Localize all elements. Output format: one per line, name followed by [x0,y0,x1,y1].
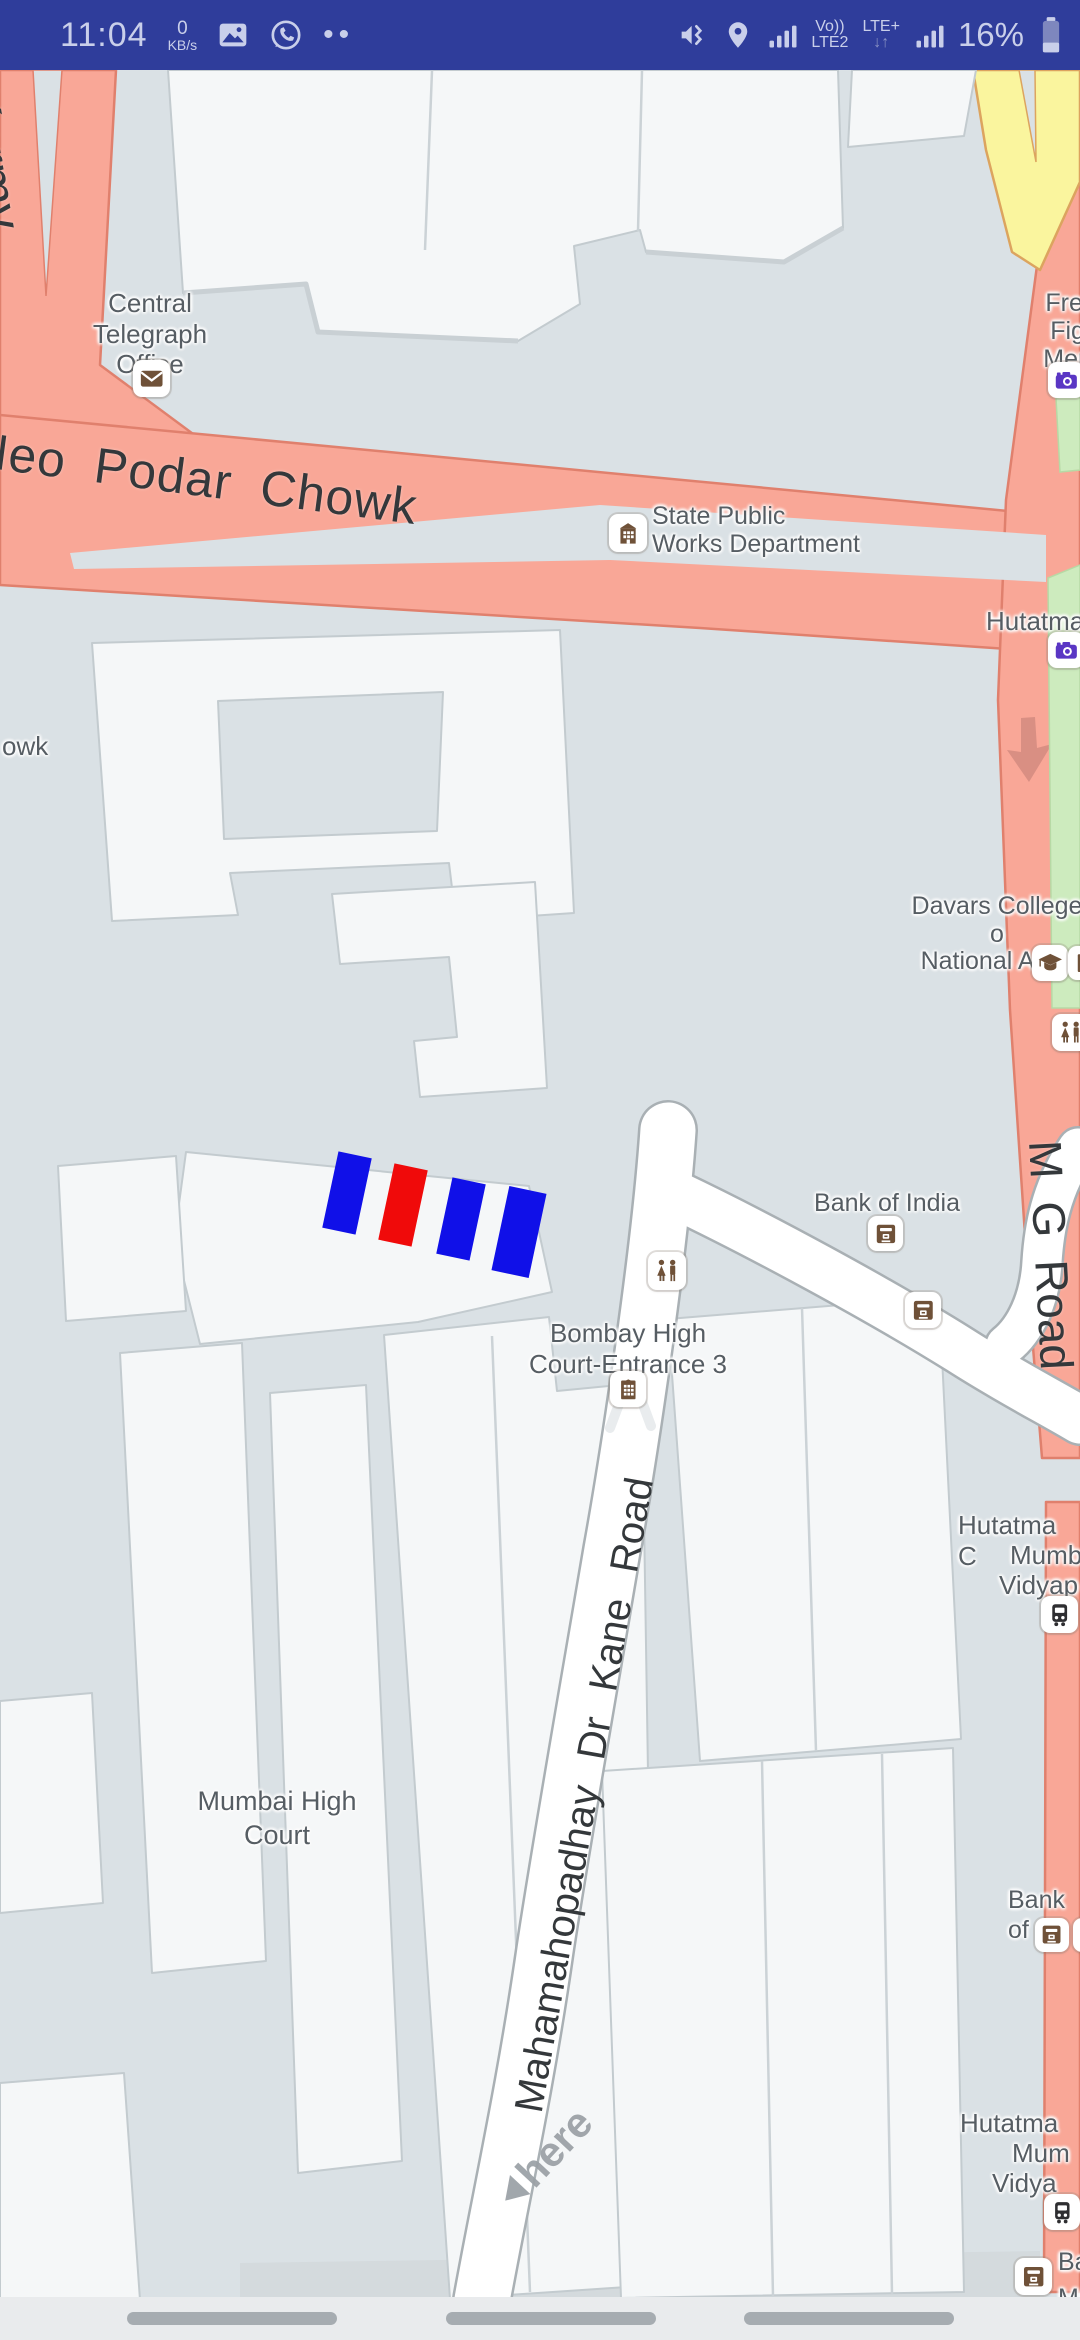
image-notification-icon [217,19,249,51]
vibrate-icon [677,19,709,51]
nav-pill-left[interactable] [127,2312,337,2325]
college-icon[interactable] [1032,945,1068,981]
poi-label-bank-bottom-1: Ba [1058,2248,1080,2278]
volte-indicator: Vo)) LTE2 [811,19,848,51]
atm-icon[interactable] [1015,2258,1052,2295]
more-notifications-dots: •• [323,18,354,52]
signal-bars-icon [767,20,797,50]
nav-pill-center[interactable] [446,2312,656,2325]
network-speed: 0 KB/s [168,19,198,52]
location-icon [723,20,753,50]
tram-icon[interactable] [1041,1596,1078,1633]
government-building-icon[interactable] [609,514,647,552]
battery-percent: 16% [958,16,1024,54]
whatsapp-notification-icon [269,18,303,52]
status-bar: 11:04 0 KB/s •• [0,0,1080,70]
battery-icon [1038,15,1064,55]
poi-label-state-pwd: State Public Works Department [652,503,860,558]
poi-label-bank-of-india: Bank of India [814,1189,960,1219]
poi-label-hutatma-low-3: Vidya [992,2168,1057,2199]
restroom-icon[interactable] [648,1252,686,1290]
poi-label-hutatma-low-2: Mum [1012,2138,1070,2169]
restroom-icon[interactable] [1052,1014,1080,1051]
road-label-mg-road: M G Road [1018,1139,1080,1371]
clock: 11:04 [60,16,148,55]
poi-label-hutatma-mid-2: Mumb [1010,1540,1080,1571]
camera-icon[interactable] [1048,632,1080,668]
poi-label-mumbai-high-court: Mumbai High Court [197,1785,356,1853]
post-office-icon[interactable] [133,360,170,397]
camera-icon[interactable] [1048,362,1080,398]
nav-pill-right[interactable] [744,2312,954,2325]
poi-label-hutatma-low-1: Hutatma [960,2108,1058,2139]
atm-icon[interactable] [1035,1918,1069,1952]
poi-label-freedom-fighters: Freed Fight Memo [1018,289,1080,373]
atm-icon[interactable] [905,1292,941,1328]
atm-icon[interactable] [868,1216,903,1251]
building-icon[interactable] [610,1371,646,1407]
road-label-chowk-fragment: owk [2,731,48,762]
tram-icon[interactable] [1044,2194,1080,2230]
signal-bars-icon [914,20,944,50]
lte-indicator: LTE+ ↓↑ [862,19,900,51]
phone-screen: Karmv Neo Podar Chowk owk M G Road Maham… [0,0,1080,2340]
atm-icon[interactable] [1073,1918,1080,1952]
building-icon[interactable] [1068,946,1080,980]
gesture-nav-bar [0,2297,1080,2340]
